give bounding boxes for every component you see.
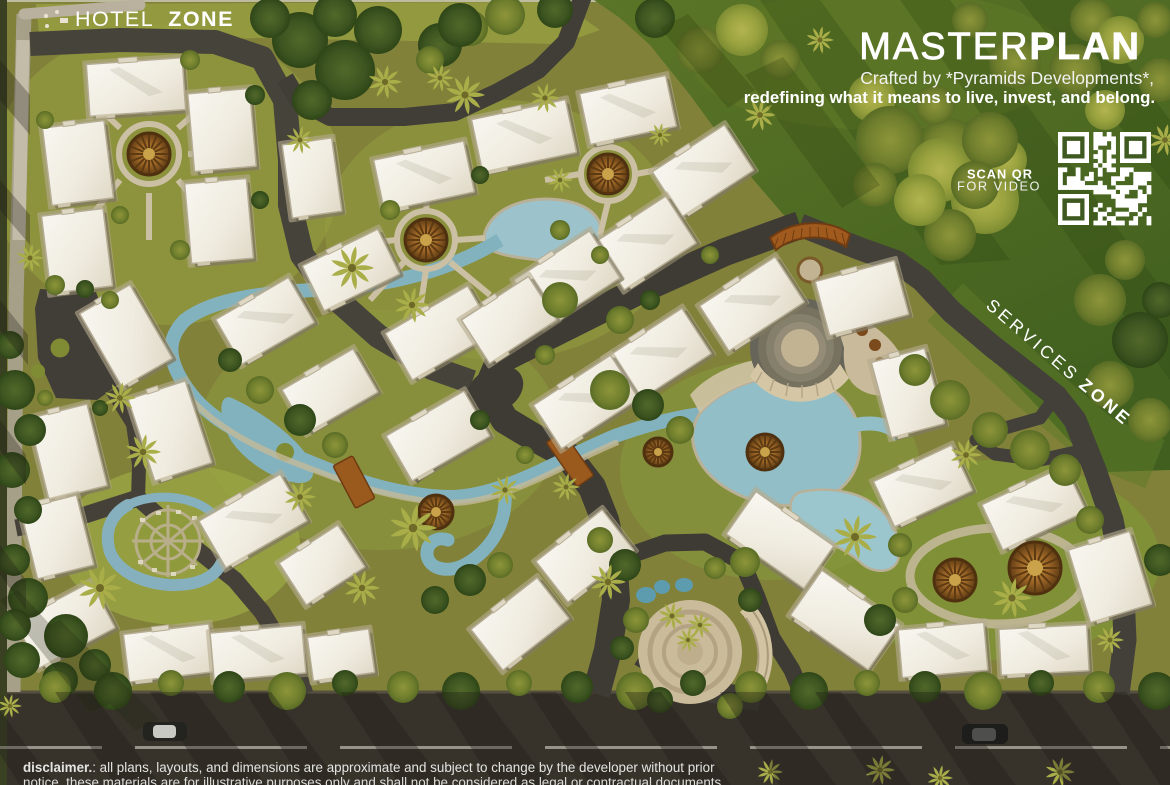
svg-text:FOR VIDEO: FOR VIDEO — [957, 179, 1041, 194]
svg-text:disclaimer.: all plans, layout: disclaimer.: all plans, layouts, and dim… — [23, 760, 715, 775]
svg-text:notice. these materials are fo: notice. these materials are for illustra… — [23, 775, 725, 785]
svg-text:Crafted by *Pyramids Developme: Crafted by *Pyramids Developments*, — [860, 68, 1154, 88]
svg-text:redefining what it means to li: redefining what it means to live, invest… — [744, 88, 1155, 107]
svg-text:MASTERPLAN: MASTERPLAN — [859, 26, 1141, 68]
